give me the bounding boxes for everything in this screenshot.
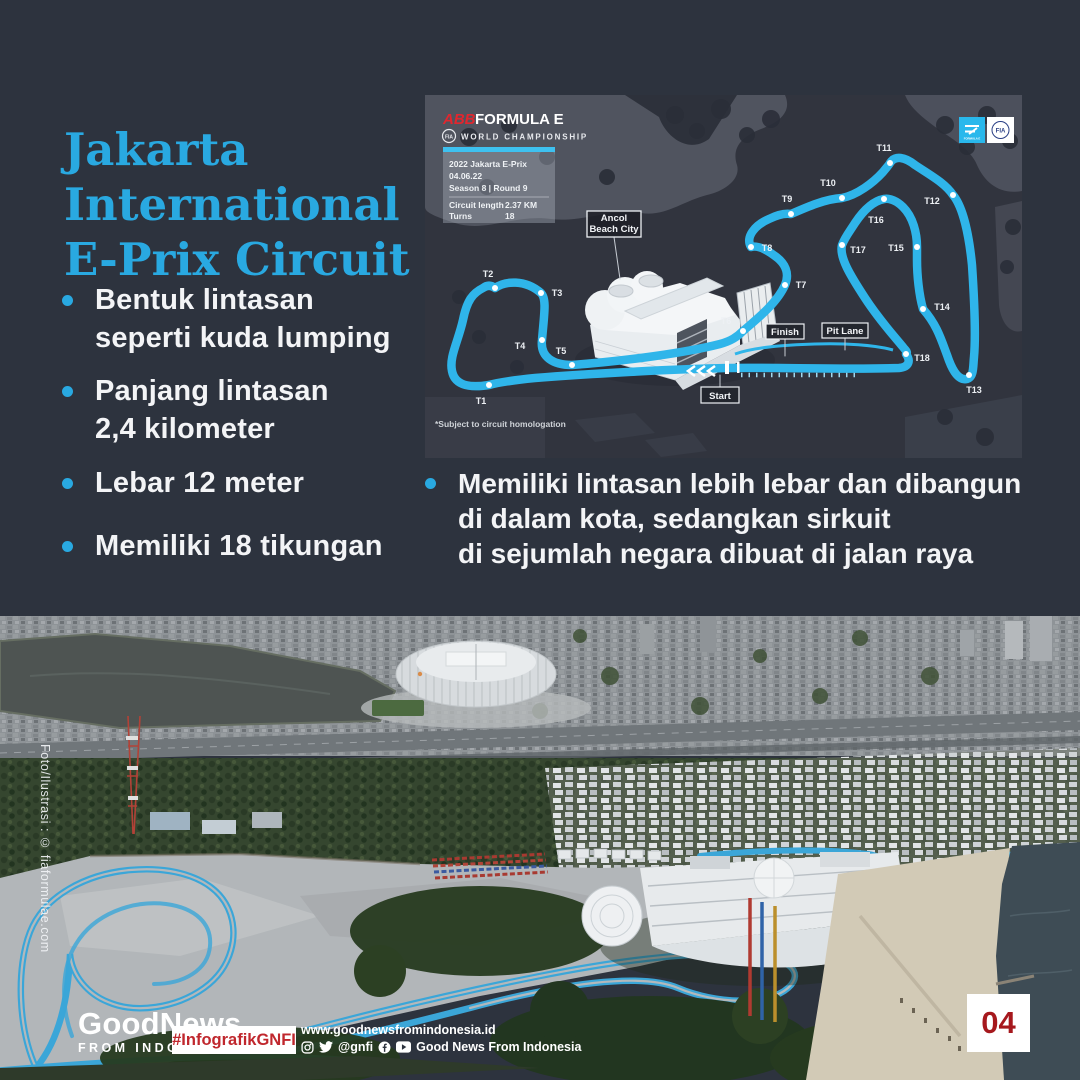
bullet-text: Bentuk lintasanseperti kuda lumping: [95, 281, 391, 357]
page-title: Jakarta International E-Prix Circuit: [64, 122, 410, 287]
turn-label-T16: T16: [868, 215, 884, 225]
hashtag-text: #InfografikGNFI: [172, 1031, 296, 1050]
venue-label-line: Ancol: [601, 213, 627, 224]
start-line: [725, 361, 729, 374]
turn-label-T1: T1: [476, 396, 487, 406]
turn-dot-T9: [788, 211, 794, 217]
finish-label: Finish: [771, 327, 799, 338]
turn-label-T14: T14: [934, 302, 950, 312]
turn-label-T8: T8: [762, 243, 773, 253]
turn-label-T2: T2: [483, 269, 494, 279]
bullet-text: Panjang lintasan2,4 kilometer: [95, 372, 329, 448]
event-title: 2022 Jakarta E-Prix: [449, 159, 527, 169]
youtube-icon: [396, 1041, 411, 1053]
turns-value: 18: [505, 211, 515, 221]
circuit-map: T1T2T3T4T5T6T7T8T9T10T11T12T13T14T15T16T…: [425, 95, 1022, 458]
abb-logo: ABB: [442, 111, 476, 128]
social-row: @gnfi Good News From Indonesia: [301, 1040, 581, 1054]
bullet-item: Bentuk lintasanseperti kuda lumping: [62, 281, 422, 357]
hashtag-badge: #InfografikGNFI: [172, 1026, 296, 1054]
title-line: Jakarta: [64, 122, 410, 177]
pit-lane-label: Pit Lane: [827, 326, 864, 337]
turn-dot-T3: [538, 290, 544, 296]
event-season-round: Season 8 | Round 9: [449, 183, 528, 193]
website-url: www.goodnewsfromindonesia.id: [301, 1023, 581, 1037]
fia-roundel-text: FIA: [445, 135, 453, 141]
bullet-item: Memiliki 18 tikungan: [62, 527, 422, 565]
bullet-dot: [62, 478, 73, 489]
turn-label-T11: T11: [876, 143, 891, 153]
turn-dot-T1: [486, 382, 492, 388]
circuit-map-panel: T1T2T3T4T5T6T7T8T9T10T11T12T13T14T15T16T…: [425, 95, 1022, 458]
circuit-length-value: 2.37 KM: [505, 200, 537, 210]
turn-label-T17: T17: [850, 245, 866, 255]
fia-badge-text: FIA: [996, 129, 1006, 135]
bullet-dot: [62, 541, 73, 552]
social-name: Good News From Indonesia: [416, 1040, 581, 1054]
event-info-card: 2022 Jakarta E-Prix 04.06.22 Season 8 | …: [443, 147, 555, 223]
turn-dot-T2: [492, 285, 498, 291]
page-number: 04: [981, 1005, 1015, 1041]
turn-label-T13: T13: [966, 385, 982, 395]
turn-dot-T13: [966, 372, 972, 378]
turn-dot-T18: [903, 351, 909, 357]
left-bullet-list: Bentuk lintasanseperti kuda lumpingPanja…: [62, 281, 422, 580]
turn-label-T6: T6: [721, 316, 732, 326]
bullet-dot: [425, 478, 436, 489]
infographic-page: Jakarta International E-Prix Circuit Ben…: [0, 0, 1080, 1080]
turn-dot-T17: [839, 242, 845, 248]
turn-dot-T6: [740, 328, 746, 334]
turn-dot-T5: [569, 362, 575, 368]
start-label: Start: [709, 391, 731, 402]
stadium-light: [418, 672, 422, 676]
turn-label-T12: T12: [924, 196, 940, 206]
event-date: 04.06.22: [449, 171, 482, 181]
world-championship-text: WORLD CHAMPIONSHIP: [461, 133, 588, 142]
turn-dot-T8: [748, 244, 754, 250]
turn-label-T9: T9: [782, 194, 793, 204]
formula-e-badge-text: FORMULA E: [964, 137, 981, 141]
turn-dot-T12: [950, 192, 956, 198]
bullet-text: Lebar 12 meter: [95, 464, 304, 502]
contact-block: www.goodnewsfromindonesia.id @gnfi Good …: [301, 1023, 581, 1054]
bullet-dot: [62, 295, 73, 306]
title-line: International: [64, 177, 410, 232]
instagram-icon: [301, 1041, 314, 1054]
turn-label-T4: T4: [515, 341, 526, 351]
photo-credit: Foto/Ilustrasi : © fiaformulae.com: [38, 744, 52, 1024]
turn-dot-T16: [881, 196, 887, 202]
bullet-item: Panjang lintasan2,4 kilometer: [62, 372, 422, 448]
turn-label-T5: T5: [556, 346, 567, 356]
turn-dot-T7: [782, 282, 788, 288]
turn-label-T18: T18: [914, 353, 930, 363]
turn-dot-T4: [539, 337, 545, 343]
start-line: [737, 362, 740, 373]
bullet-item: Lebar 12 meter: [62, 464, 422, 502]
right-bullet-item: Memiliki lintasan lebih lebar dan dibang…: [425, 466, 1045, 571]
bullet-text: Memiliki 18 tikungan: [95, 527, 383, 565]
circuit-length-label: Circuit length: [449, 200, 504, 210]
turns-label: Turns: [449, 211, 472, 221]
page-number-badge: 04: [967, 994, 1030, 1052]
facebook-icon: [378, 1041, 391, 1054]
turn-label-T3: T3: [552, 288, 563, 298]
social-handle: @gnfi: [338, 1040, 373, 1054]
turn-label-T7: T7: [796, 280, 807, 290]
twitter-icon: [319, 1041, 333, 1053]
turn-label-T15: T15: [888, 243, 904, 253]
turn-label-T10: T10: [820, 178, 836, 188]
title-line: E-Prix Circuit: [64, 232, 410, 287]
venue-label-line: Beach City: [589, 224, 639, 235]
map-footnote: *Subject to circuit homologation: [435, 419, 566, 429]
turn-dot-T15: [914, 244, 920, 250]
bullet-dot: [62, 386, 73, 397]
right-bullet-text: Memiliki lintasan lebih lebar dan dibang…: [458, 466, 1021, 571]
turn-dot-T14: [920, 306, 926, 312]
formula-e-logo-text: FORMULA E: [475, 111, 564, 128]
turn-dot-T11: [887, 160, 893, 166]
turn-dot-T10: [839, 195, 845, 201]
